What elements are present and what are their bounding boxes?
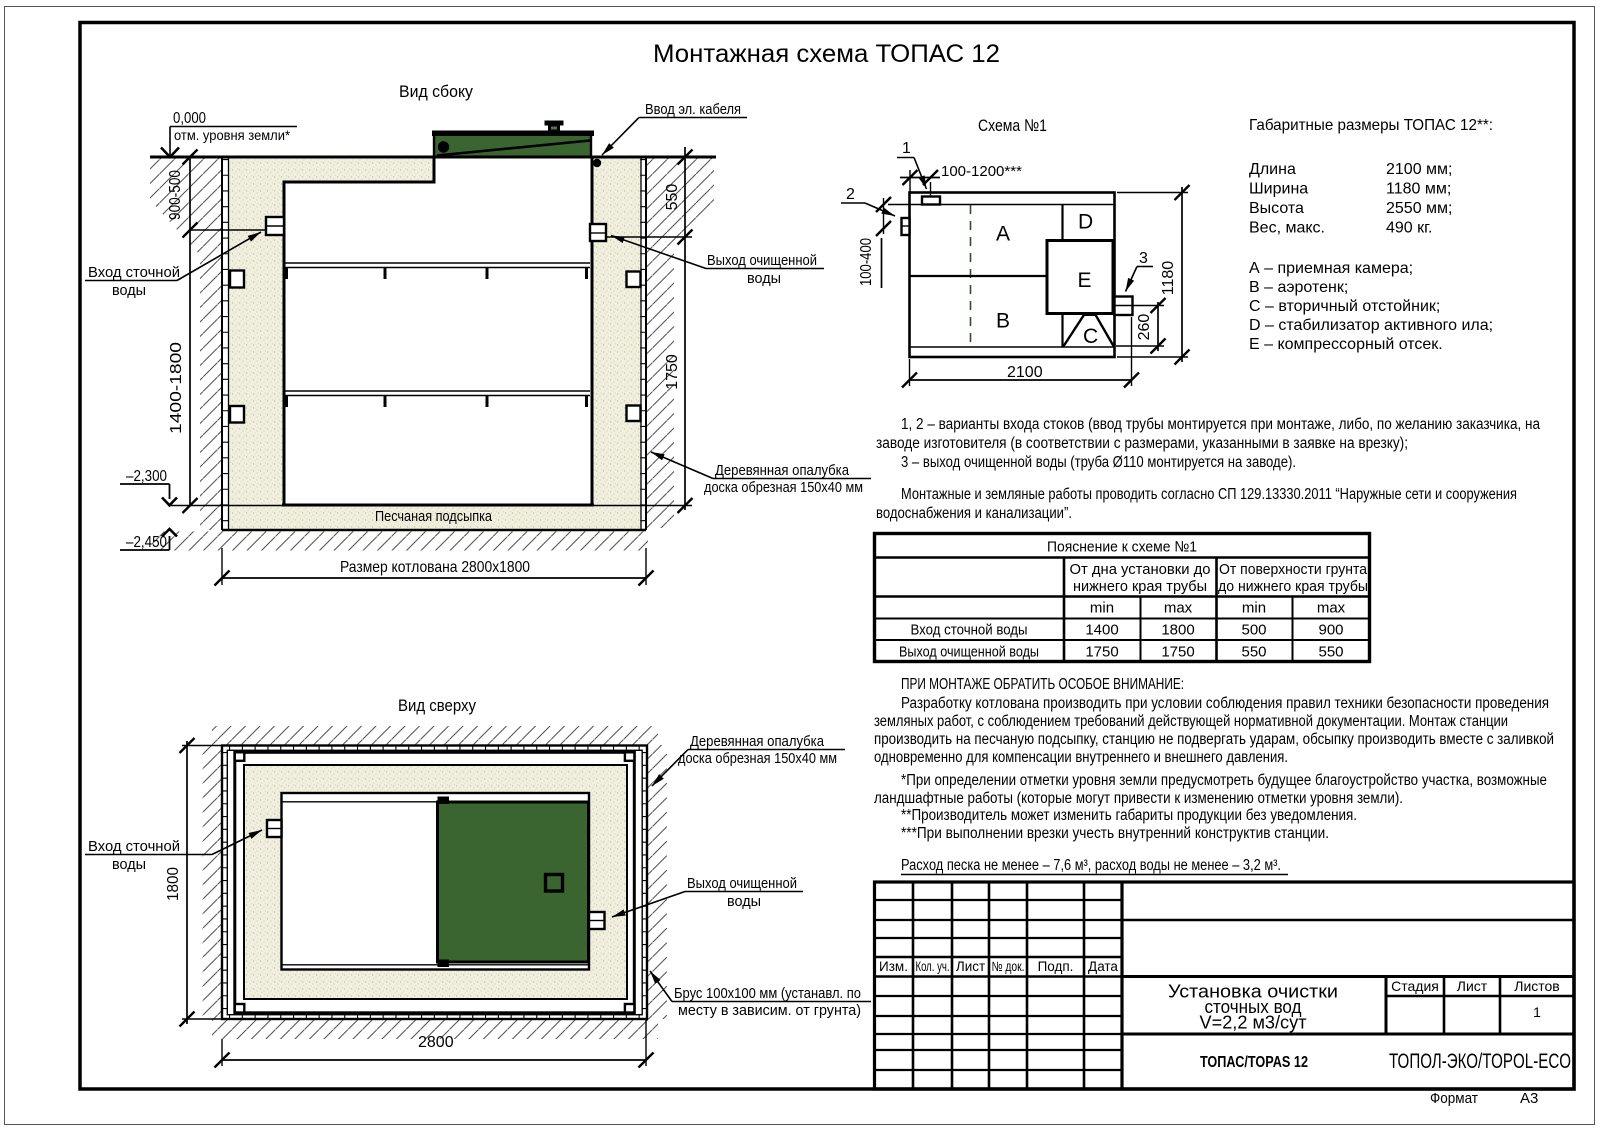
svg-text:A: A — [996, 223, 1010, 246]
svg-text:E: E — [1078, 269, 1092, 292]
svg-text:Габаритные размеры ТОПАС 12**:: Габаритные размеры ТОПАС 12**: — [1249, 117, 1493, 134]
svg-text:1: 1 — [902, 140, 911, 157]
svg-text:месту в зависим. от грунта): месту в зависим. от грунта) — [678, 1002, 861, 1019]
svg-text:одновременно для компенсации в: одновременно для компенсации внутреннего… — [874, 749, 1288, 766]
svg-text:Размер котлована 2800х1800: Размер котлована 2800х1800 — [340, 559, 530, 576]
svg-text:ПРИ МОНТАЖЕ ОБРАТИТЬ ОСОБОЕ ВН: ПРИ МОНТАЖЕ ОБРАТИТЬ ОСОБОЕ ВНИМАНИЕ: — [901, 676, 1184, 693]
svg-text:воды: воды — [747, 270, 781, 287]
svg-text:Выход очищенной: Выход очищенной — [687, 875, 797, 892]
svg-text:2800: 2800 — [418, 1034, 454, 1051]
svg-text:доска обрезная 150х40 мм: доска обрезная 150х40 мм — [678, 750, 837, 767]
svg-text:1750: 1750 — [1161, 644, 1194, 661]
svg-text:V=2,2 м3/сут: V=2,2 м3/сут — [1200, 1013, 1307, 1033]
svg-text:Пояснение к схеме №1: Пояснение к схеме №1 — [1047, 539, 1197, 556]
svg-text:***При выполнении врезки учест: ***При выполнении врезки учесть внутренн… — [901, 825, 1329, 842]
svg-text:100-400: 100-400 — [858, 238, 875, 286]
svg-text:2: 2 — [846, 186, 855, 203]
svg-text:3: 3 — [1139, 250, 1148, 267]
svg-text:Вес, макс.: Вес, макс. — [1249, 220, 1325, 237]
svg-text:Монтажные и земляные работы пр: Монтажные и земляные работы проводить со… — [901, 486, 1517, 503]
svg-text:–2,300: –2,300 — [126, 468, 167, 485]
svg-text:Формат: Формат — [1430, 1090, 1478, 1107]
svg-text:0,000: 0,000 — [173, 110, 206, 127]
svg-text:100-1200***: 100-1200*** — [941, 163, 1022, 180]
svg-text:Деревянная опалубка: Деревянная опалубка — [715, 462, 850, 479]
svg-text:А – приемная камера;: А – приемная камера; — [1249, 260, 1413, 277]
svg-text:Выход очищенной: Выход очищенной — [707, 252, 817, 269]
svg-text:1750: 1750 — [664, 354, 681, 390]
svg-text:водоснабжения и канализации”.: водоснабжения и канализации”. — [876, 505, 1072, 522]
svg-text:производить на песчаную подсып: производить на песчаную подсыпку, станци… — [874, 731, 1554, 748]
svg-text:воды: воды — [112, 282, 146, 299]
svg-text:*При определении отметки уровн: *При определении отметки уровня земли пр… — [901, 772, 1547, 789]
svg-text:2550 мм;: 2550 мм; — [1386, 200, 1452, 217]
svg-text:Расход песка не менее – 7,6 м³: Расход песка не менее – 7,6 м³, расход в… — [901, 857, 1281, 874]
svg-text:Вход сточной: Вход сточной — [88, 264, 180, 281]
svg-text:1180 мм;: 1180 мм; — [1386, 181, 1451, 198]
svg-text:Высота: Высота — [1249, 200, 1304, 217]
svg-text:отм. уровня земли*: отм. уровня земли* — [174, 127, 291, 143]
svg-text:max: max — [1317, 600, 1346, 617]
svg-text:ландшафтные работы (которые мо: ландшафтные работы (которые могут привес… — [874, 790, 1403, 807]
svg-text:550: 550 — [664, 184, 681, 211]
svg-text:D: D — [1078, 211, 1093, 234]
svg-text:Деревянная опалубка: Деревянная опалубка — [690, 733, 825, 750]
svg-text:воды: воды — [112, 856, 146, 873]
svg-text:1, 2 – варианты входа стоков: 1, 2 – варианты входа стоков (ввод трубы… — [901, 416, 1540, 433]
svg-text:260: 260 — [1136, 314, 1153, 341]
svg-text:От дна установки до: От дна установки до — [1070, 561, 1211, 578]
svg-text:1800: 1800 — [165, 867, 182, 901]
svg-text:min: min — [1090, 600, 1114, 617]
svg-text:B: B — [996, 310, 1010, 333]
svg-text:Лист: Лист — [956, 959, 985, 974]
svg-text:2100: 2100 — [1007, 364, 1043, 381]
svg-text:А3: А3 — [1520, 1090, 1538, 1107]
svg-text:Подп.: Подп. — [1038, 959, 1074, 974]
svg-text:1400-1800: 1400-1800 — [168, 342, 185, 434]
svg-text:нижнего края трубы: нижнего края трубы — [1073, 578, 1207, 595]
svg-text:Схема №1: Схема №1 — [978, 116, 1047, 135]
svg-text:до нижнего края трубы: до нижнего края трубы — [1218, 578, 1368, 595]
svg-text:С – вторичный отстойник;: С – вторичный отстойник; — [1249, 298, 1440, 315]
svg-text:От поверхности грунта: От поверхности грунта — [1219, 561, 1368, 578]
svg-text:Выход очищенной воды: Выход очищенной воды — [899, 644, 1039, 661]
svg-text:Брус 100х100 мм (устанавл. по: Брус 100х100 мм (устанавл. по — [674, 985, 861, 1002]
svg-text:550: 550 — [1241, 644, 1266, 661]
svg-text:Вид сверху: Вид сверху — [398, 696, 476, 715]
svg-text:min: min — [1242, 600, 1266, 617]
svg-text:490 кг.: 490 кг. — [1386, 220, 1432, 237]
svg-text:1180: 1180 — [1160, 261, 1177, 296]
svg-text:Листов: Листов — [1514, 978, 1560, 994]
svg-text:1: 1 — [1533, 1004, 1541, 1020]
svg-text:Дата: Дата — [1088, 959, 1118, 974]
svg-text:D – стабилизатор активного ила: D – стабилизатор активного ила; — [1249, 317, 1493, 334]
svg-text:№ док.: № док. — [992, 959, 1025, 974]
svg-text:Длина: Длина — [1249, 161, 1296, 178]
svg-text:ТОПАС/TOPAS 12: ТОПАС/TOPAS 12 — [1200, 1054, 1308, 1071]
svg-text:1750: 1750 — [1085, 644, 1118, 661]
svg-text:900: 900 — [1318, 622, 1343, 639]
svg-text:Монтажная схема ТОПАС 12: Монтажная схема ТОПАС 12 — [653, 40, 1000, 68]
svg-text:Разработку котлована производи: Разработку котлована производить при усл… — [901, 695, 1549, 712]
svg-text:C: C — [1083, 325, 1098, 348]
svg-text:земляных работ, с соблюдением: земляных работ, с соблюдением требований… — [874, 713, 1508, 730]
svg-text:Вход сточной: Вход сточной — [88, 838, 180, 855]
svg-text:ТОПОЛ-ЭКО/TOPOL-ECO: ТОПОЛ-ЭКО/TOPOL-ECO — [1389, 1050, 1571, 1073]
svg-text:500: 500 — [1241, 622, 1266, 639]
svg-text:1800: 1800 — [1161, 622, 1194, 639]
svg-text:2100 мм;: 2100 мм; — [1386, 161, 1452, 178]
svg-text:заводе изготовителя (в соответ: заводе изготовителя (в соответствии с ра… — [876, 435, 1408, 452]
svg-text:доска обрезная 150х40 мм: доска обрезная 150х40 мм — [704, 479, 863, 496]
svg-text:3 – выход очищенной воды (труб: 3 – выход очищенной воды (труба Ø110 мон… — [901, 454, 1296, 471]
svg-text:max: max — [1164, 600, 1193, 617]
svg-text:Изм.: Изм. — [879, 959, 908, 974]
svg-text:Вид сбоку: Вид сбоку — [399, 82, 473, 101]
svg-text:Песчаная подсыпка: Песчаная подсыпка — [375, 508, 493, 525]
svg-text:Стадия: Стадия — [1391, 978, 1439, 994]
svg-text:Вход сточной воды: Вход сточной воды — [911, 622, 1028, 639]
svg-text:**Производитель может изменить: **Производитель может изменить габариты … — [901, 807, 1357, 824]
svg-text:Ширина: Ширина — [1249, 181, 1308, 198]
svg-text:Е – компрессорный отсек.: Е – компрессорный отсек. — [1249, 336, 1443, 353]
svg-text:воды: воды — [727, 893, 761, 910]
svg-text:–2,450: –2,450 — [126, 534, 167, 551]
svg-text:Ввод эл. кабеля: Ввод эл. кабеля — [645, 101, 741, 118]
svg-text:550: 550 — [1318, 644, 1343, 661]
svg-text:Лист: Лист — [1457, 978, 1488, 994]
svg-text:Кол. уч.: Кол. уч. — [916, 959, 950, 974]
svg-text:900-500: 900-500 — [167, 170, 184, 220]
svg-text:1400: 1400 — [1085, 622, 1118, 639]
svg-text:В – аэротенк;: В – аэротенк; — [1249, 279, 1348, 296]
